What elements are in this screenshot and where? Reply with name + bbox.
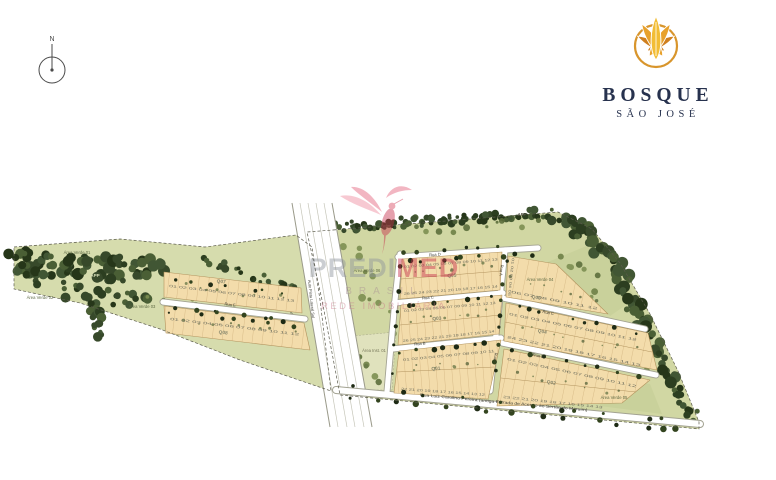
compass-north-label: N (49, 36, 54, 43)
watermark-line2: BRASIL (345, 286, 423, 297)
street-label-rua-b-west: Rua B (414, 340, 426, 346)
watermark-line3: REDE IMOBILIÁRIA (321, 301, 447, 312)
logo-subtitle: SÃO JOSÉ (616, 108, 700, 120)
label-area-inst-01: Área Inst. 01 (362, 348, 386, 353)
label-area-verde-03: Área Verde 03 (129, 304, 156, 309)
label-area-verde-05: Área Verde 05 (601, 395, 628, 400)
label-app-left: APP (90, 273, 99, 278)
label-area-verde-01: Área Verde 01 (64, 250, 91, 255)
brand-logo: BOSQUE SÃO JOSÉ (602, 16, 713, 120)
label-q08: Q08 (218, 329, 228, 336)
label-q03: Q03 (432, 316, 442, 323)
site-plan-page: Via Marginal Prolong. Auto Pista Lateral… (0, 0, 776, 480)
street-label-rua-c-west: Rua C (422, 295, 434, 301)
label-q01: Q01 (431, 366, 441, 373)
watermark-brand: PREDIMED (309, 253, 460, 283)
logo-leaf-icon (635, 16, 677, 67)
label-area-verde-04: Área Verde 04 (527, 277, 554, 282)
label-area-verde-02: Área Verde 02 (27, 295, 54, 300)
logo-title: BOSQUE (602, 85, 713, 106)
site-plan-map: Via Marginal Prolong. Auto Pista Lateral… (0, 0, 776, 480)
north-compass: N (39, 36, 65, 83)
